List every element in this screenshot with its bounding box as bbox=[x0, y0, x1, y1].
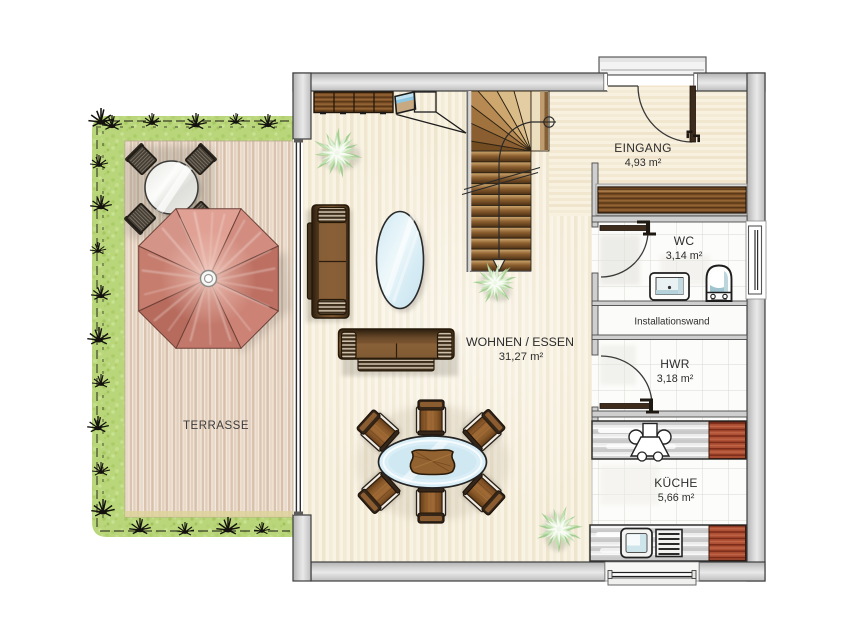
svg-text:5,66 m²: 5,66 m² bbox=[658, 492, 695, 504]
svg-text:HWR: HWR bbox=[660, 357, 690, 371]
svg-text:WC: WC bbox=[674, 234, 695, 248]
svg-text:3,18 m²: 3,18 m² bbox=[657, 373, 694, 385]
svg-text:KÜCHE: KÜCHE bbox=[654, 476, 698, 490]
svg-text:Installationswand: Installationswand bbox=[634, 317, 709, 328]
svg-text:31,27 m²: 31,27 m² bbox=[499, 351, 544, 363]
svg-text:4,93 m²: 4,93 m² bbox=[625, 157, 662, 169]
svg-text:WOHNEN / ESSEN: WOHNEN / ESSEN bbox=[466, 335, 574, 349]
svg-text:3,14 m²: 3,14 m² bbox=[666, 250, 703, 262]
svg-text:EINGANG: EINGANG bbox=[614, 141, 671, 155]
svg-text:TERRASSE: TERRASSE bbox=[183, 420, 249, 432]
